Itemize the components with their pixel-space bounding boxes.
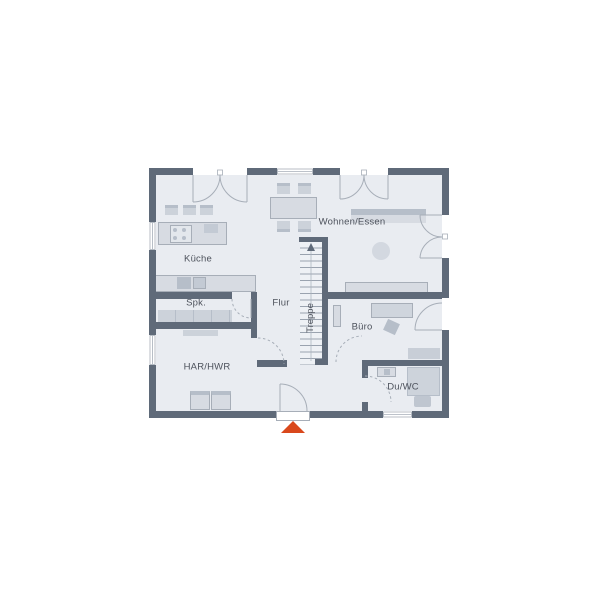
door-window-symbols-layer <box>149 168 449 418</box>
room-label-flur: Flur <box>272 298 289 309</box>
room-label-treppe: Treppe <box>302 295 320 341</box>
room-label-kueche: Küche <box>184 254 212 265</box>
room-label-har-hwr: HAR/HWR <box>184 362 231 373</box>
room-label-du-wc: Du/WC <box>387 382 419 393</box>
stairs-direction-arrow <box>307 243 315 251</box>
entrance-arrow <box>281 421 305 433</box>
room-label-wohnen-essen: Wohnen/Essen <box>319 217 386 228</box>
floor-plan: Küche Wohnen/Essen Spk. Flur Treppe Büro… <box>149 168 449 418</box>
room-label-spk: Spk. <box>186 298 206 309</box>
room-label-buero: Büro <box>352 322 373 333</box>
